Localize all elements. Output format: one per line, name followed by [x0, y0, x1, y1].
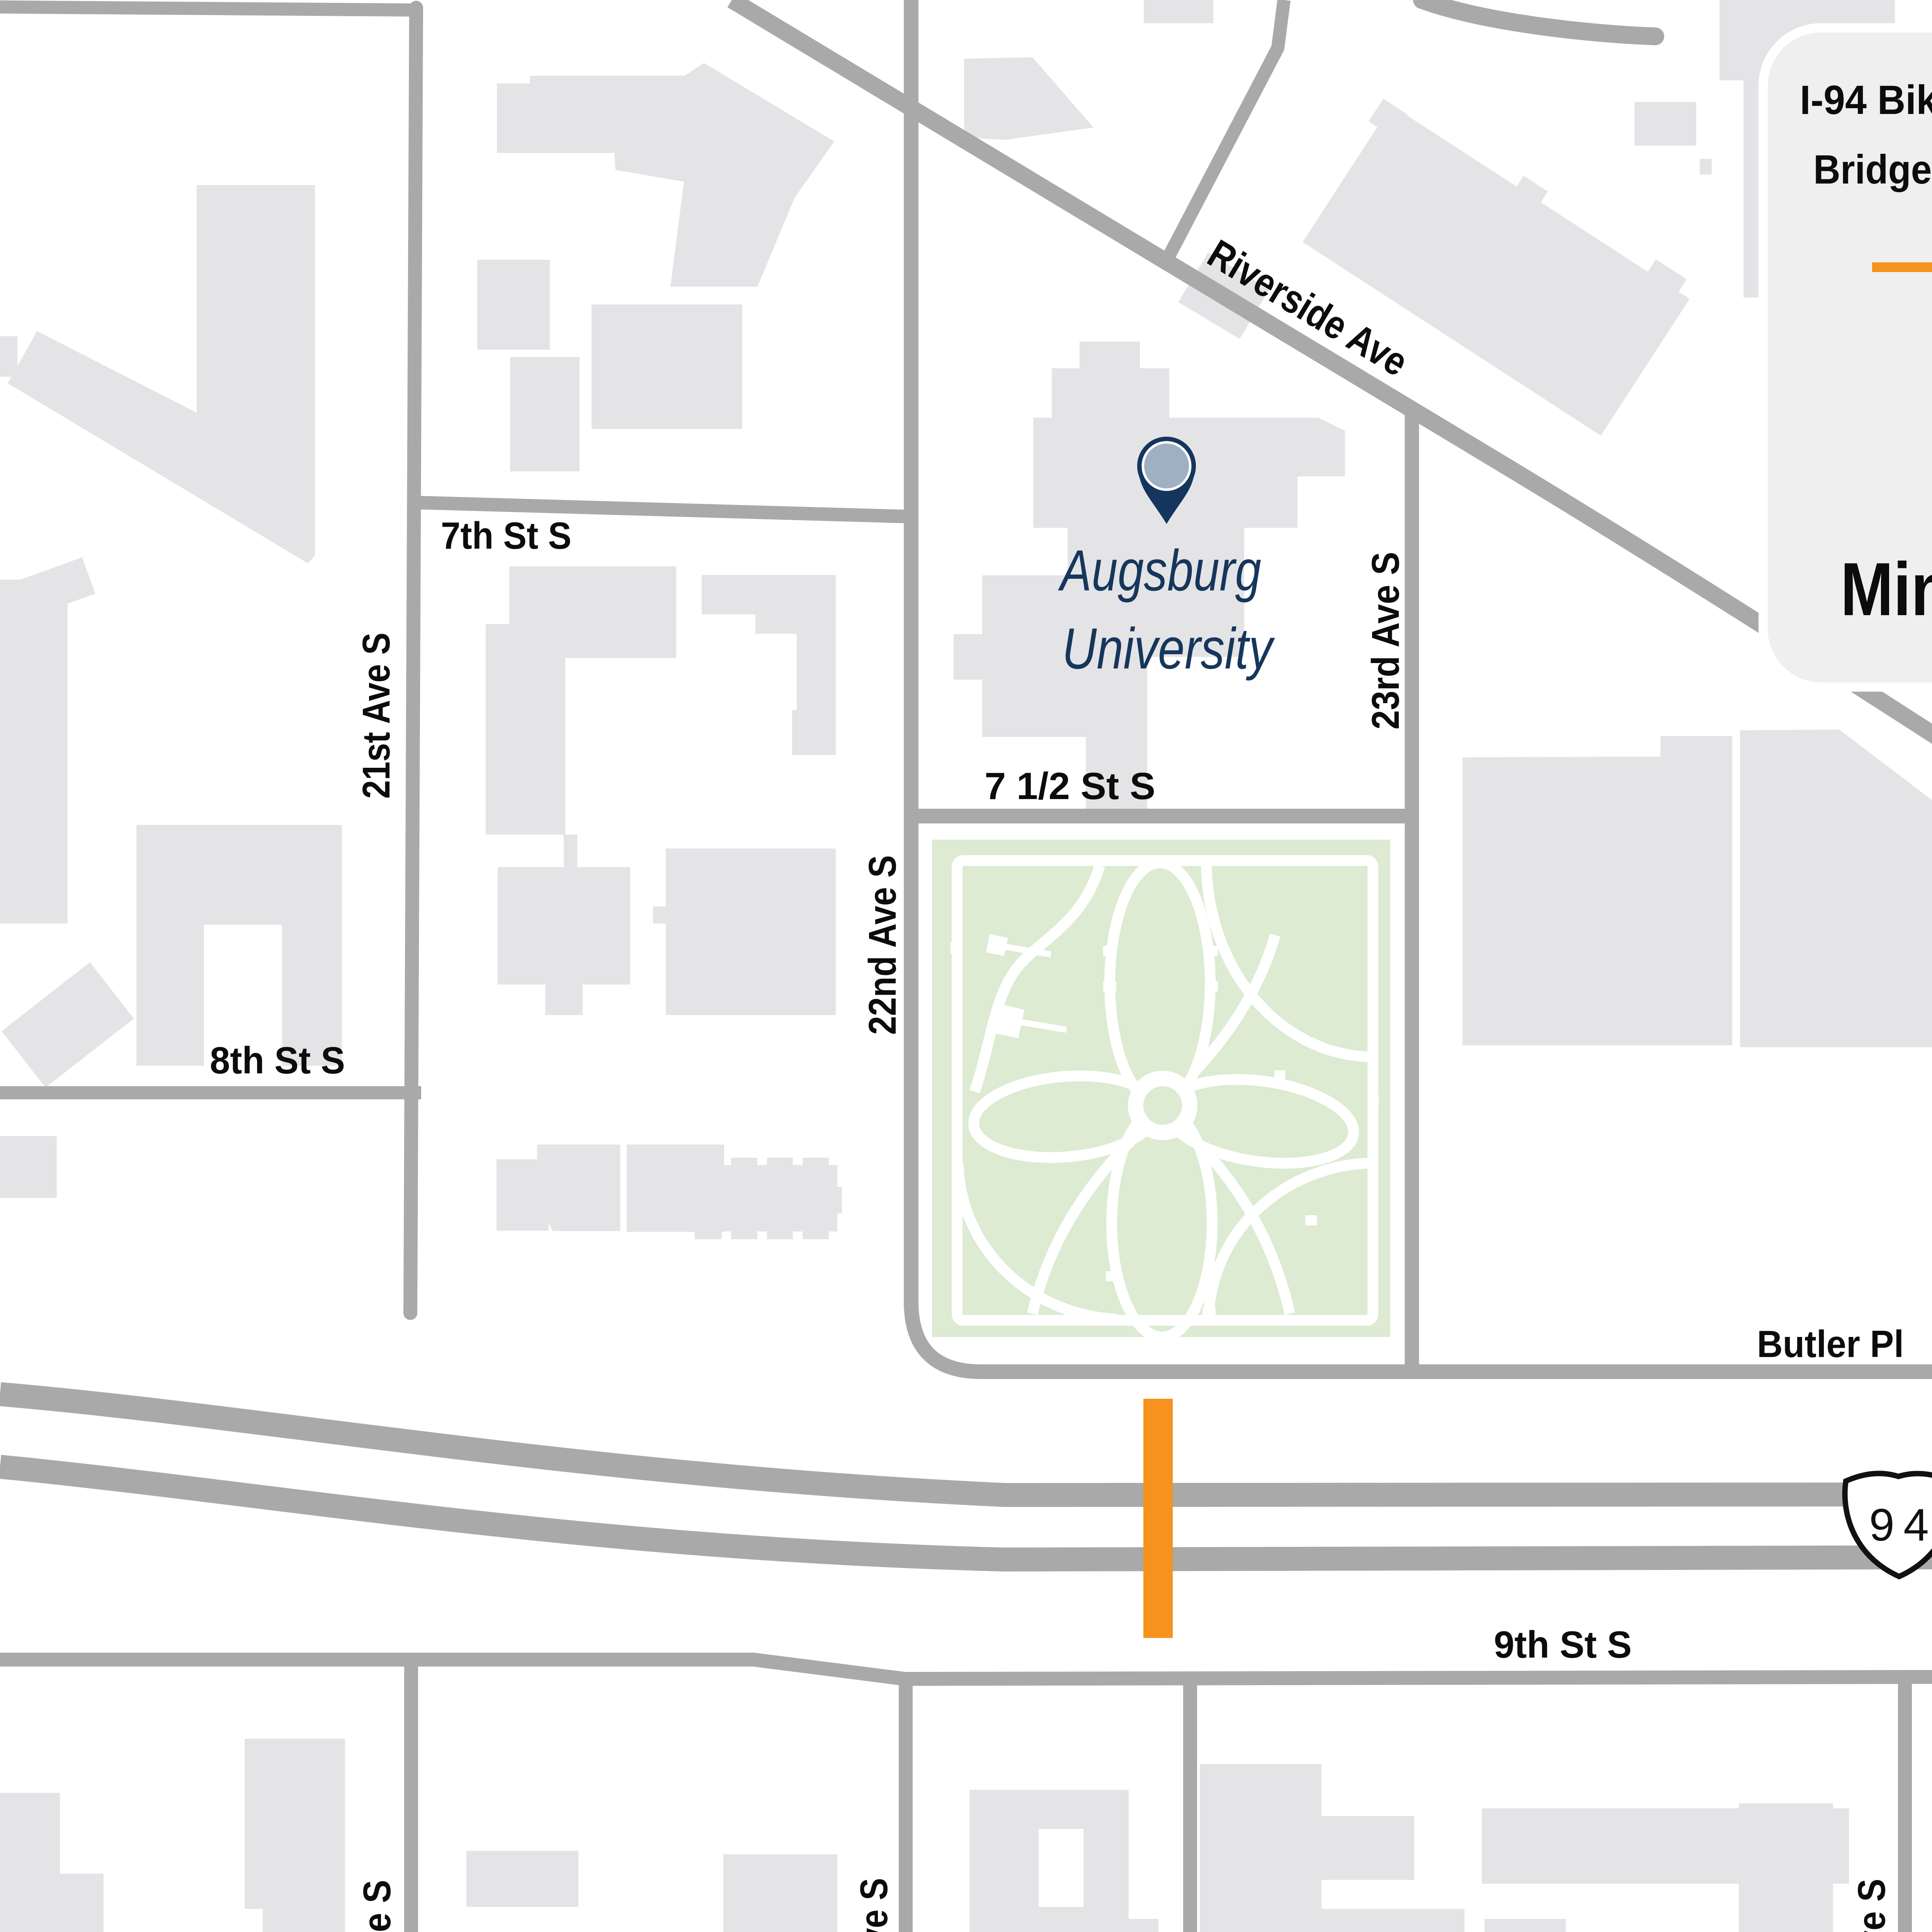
svg-text:University: University: [1062, 616, 1276, 681]
svg-text:Minneapolis: Minneapolis: [1840, 547, 1932, 631]
svg-text:21st Ave S: 21st Ave S: [355, 1880, 399, 1932]
svg-text:9: 9: [1869, 1500, 1895, 1551]
svg-text:7 1/2 St S: 7 1/2 St S: [985, 765, 1155, 807]
svg-text:Bridge Near 22nd Ave S: Bridge Near 22nd Ave S: [1813, 147, 1932, 192]
svg-text:23rd Ave S: 23rd Ave S: [1364, 552, 1407, 730]
svg-text:4: 4: [1903, 1500, 1929, 1551]
svg-text:9th St S: 9th St S: [1494, 1623, 1632, 1666]
svg-text:22nd Ave S: 22nd Ave S: [852, 1878, 896, 1932]
svg-text:7th St S: 7th St S: [441, 514, 571, 557]
svg-text:8th St S: 8th St S: [210, 1039, 345, 1082]
svg-text:I-94 Bike and Pedestrian: I-94 Bike and Pedestrian: [1800, 77, 1932, 123]
svg-text:Augsburg: Augsburg: [1058, 538, 1261, 603]
svg-text:22nd Ave S: 22nd Ave S: [861, 855, 904, 1035]
svg-text:21st Ave S: 21st Ave S: [355, 633, 398, 799]
svg-text:Butler Pl: Butler Pl: [1757, 1323, 1904, 1365]
svg-text:24th Ave S: 24th Ave S: [1850, 1879, 1893, 1932]
